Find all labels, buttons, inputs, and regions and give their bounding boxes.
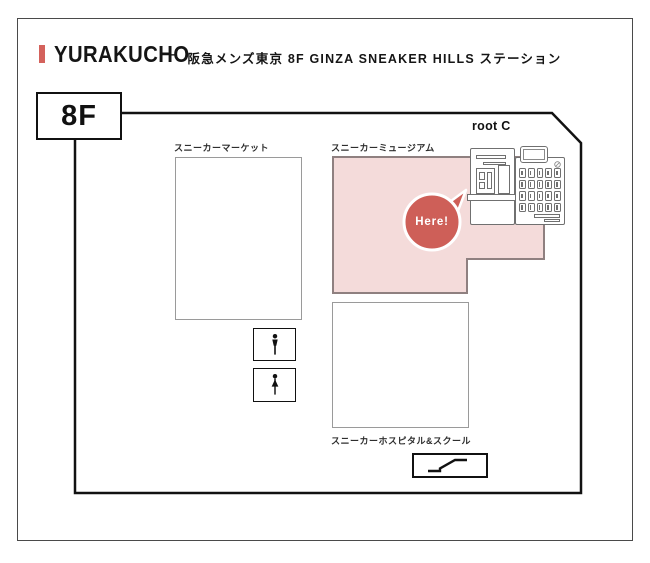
market-area	[175, 157, 302, 320]
floor-badge: 8F	[36, 92, 122, 140]
floor-plan-canvas	[0, 0, 650, 563]
womens-restroom-box	[253, 368, 296, 402]
escalator-icon	[418, 456, 482, 476]
escalator-box	[412, 453, 488, 478]
locker-grid	[519, 168, 561, 212]
market-label: スニーカーマーケット	[174, 141, 269, 154]
womens-restroom-icon	[267, 372, 283, 398]
locker-tray	[534, 214, 560, 218]
locker-bank-icon	[515, 157, 565, 225]
mens-restroom-box	[253, 328, 296, 361]
kiosk-door	[498, 165, 510, 194]
kiosk-panel	[476, 168, 495, 194]
hospital-area	[332, 302, 469, 428]
here-label: Here!	[404, 194, 460, 250]
kiosk-counter	[467, 194, 516, 201]
kiosk-sign-bar	[476, 155, 506, 159]
floor-map-page: YURAKUCHO − 阪急メンズ東京 8F GINZA SNEAKER HIL…	[0, 0, 650, 563]
root-c-label: root C	[472, 119, 511, 133]
locker-tray	[544, 219, 560, 222]
hospital-label: スニーカーホスピタル&スクール	[331, 434, 471, 447]
locker-screen	[520, 146, 548, 163]
museum-label: スニーカーミュージアム	[331, 141, 435, 154]
ticket-kiosk-icon	[470, 148, 515, 225]
ic-chip-icon	[554, 161, 561, 168]
mens-restroom-icon	[267, 332, 283, 358]
